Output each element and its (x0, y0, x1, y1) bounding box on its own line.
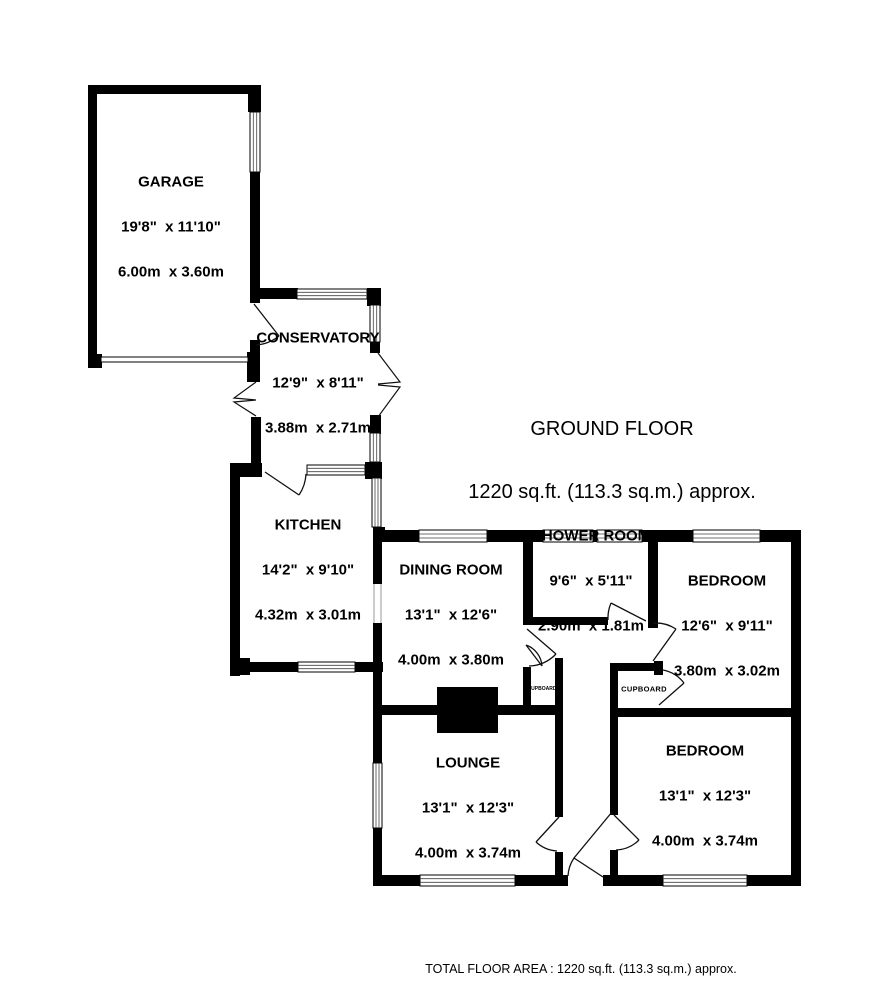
room-dims-metric: 3.80m x 3.02m (674, 664, 780, 679)
wall-segment (555, 852, 563, 885)
wall-segment (248, 662, 299, 672)
wall-segment (373, 540, 382, 584)
wall-segment (250, 288, 298, 299)
wall-segment (373, 875, 420, 886)
door-bedroom-2 (614, 815, 639, 850)
room-label-bedroom-2: BEDROOM 13'1" x 12'3" 4.00m x 3.74m (652, 714, 758, 879)
plan-footer: TOTAL FLOOR AREA : 1220 sq.ft. (113.3 sq… (425, 926, 736, 994)
room-dims-metric: 4.32m x 3.01m (255, 608, 361, 623)
door-bedroom-1 (653, 623, 676, 661)
room-dims-metric: 3.88m x 2.71m (256, 421, 379, 436)
open-doorway-west (234, 382, 256, 416)
room-name: LOUNGE (415, 756, 521, 771)
room-name: KITCHEN (255, 518, 361, 533)
wall-segment (654, 661, 663, 675)
window (307, 465, 365, 475)
wall-segment (555, 658, 563, 817)
room-name: CONSERVATORY (256, 331, 379, 346)
room-label-conservatory: CONSERVATORY 12'9" x 8'11" 3.88m x 2.71m (256, 301, 379, 466)
room-dims-metric: 4.00m x 3.74m (652, 834, 758, 849)
room-dims-metric: 4.00m x 3.80m (398, 653, 504, 668)
room-dims-imperial: 13'1" x 12'6" (398, 608, 504, 623)
room-dims-imperial: 12'6" x 9'11" (674, 619, 780, 634)
plan-title-floor: GROUND FLOOR (468, 419, 756, 440)
wall-segment (250, 172, 260, 303)
wall-segment (230, 658, 250, 675)
cupboard-label-large: CUPBOARD (621, 685, 667, 694)
door-lounge (536, 817, 559, 851)
room-label-garage: GARAGE 19'8" x 11'10" 6.00m x 3.60m (118, 145, 224, 310)
room-name: BEDROOM (652, 744, 758, 759)
window (250, 112, 260, 172)
window (372, 478, 381, 527)
room-dims-imperial: 19'8" x 11'10" (118, 220, 224, 235)
plan-title-area: 1220 sq.ft. (113.3 sq.m.) approx. (468, 482, 756, 503)
window (298, 662, 355, 672)
room-name: DINING ROOM (398, 563, 504, 578)
wall-segment (373, 623, 382, 764)
garage-front-line (101, 357, 248, 362)
cupboard-label-small: CUPBOARD (528, 686, 557, 692)
window (297, 289, 367, 299)
opening-kitchen-dining (374, 584, 381, 623)
wall-segment (88, 85, 260, 94)
room-dims-imperial: 12'9" x 8'11" (256, 376, 379, 391)
room-dims-metric: 4.00m x 3.74m (415, 846, 521, 861)
wall-segment (610, 663, 618, 815)
room-label-lounge: LOUNGE 13'1" x 12'3" 4.00m x 3.74m (415, 726, 521, 891)
room-dims-imperial: 13'1" x 12'3" (415, 801, 521, 816)
window (373, 763, 382, 828)
wall-segment (230, 463, 240, 676)
floor-plan-page: GARAGE 19'8" x 11'10" 6.00m x 3.60m CONS… (0, 0, 886, 994)
wall-segment (248, 85, 261, 112)
room-dims-imperial: 14'2" x 9'10" (255, 563, 361, 578)
room-label-kitchen: KITCHEN 14'2" x 9'10" 4.32m x 3.01m (255, 488, 361, 653)
wall-segment (88, 85, 97, 367)
total-floor-area-text: TOTAL FLOOR AREA : 1220 sq.ft. (113.3 sq… (425, 962, 736, 977)
room-label-dining-room: DINING ROOM 13'1" x 12'6" 4.00m x 3.80m (398, 533, 504, 698)
room-dims-metric: 2.90m x 1.81m (532, 619, 650, 634)
wall-segment (88, 354, 102, 368)
plan-title: GROUND FLOOR 1220 sq.ft. (113.3 sq.m.) a… (468, 377, 756, 545)
door-front-entrance (568, 812, 612, 877)
open-doorway-east (378, 353, 400, 417)
room-dims-imperial: 13'1" x 12'3" (652, 789, 758, 804)
room-label-bedroom-1: BEDROOM 12'6" x 9'11" 3.80m x 3.02m (674, 544, 780, 709)
room-name: BEDROOM (674, 574, 780, 589)
room-dims-imperial: 9'6" x 5'11" (532, 574, 650, 589)
room-dims-metric: 6.00m x 3.60m (118, 265, 224, 280)
wall-segment (610, 850, 618, 885)
room-name: GARAGE (118, 175, 224, 190)
